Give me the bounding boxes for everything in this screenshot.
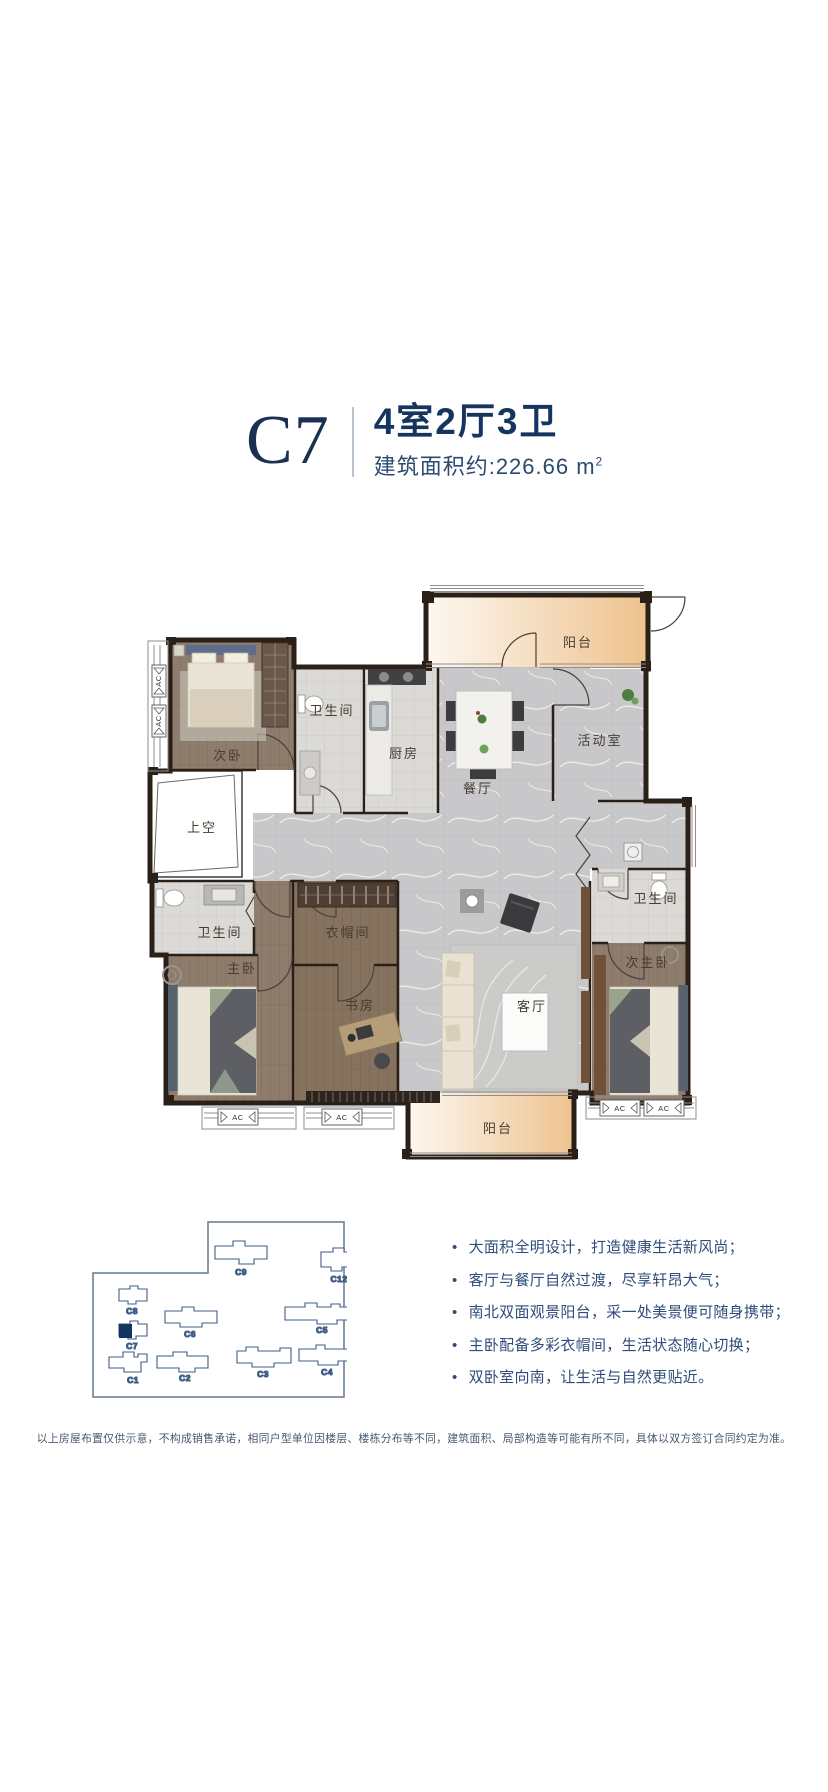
svg-text:AC: AC xyxy=(154,715,163,727)
ac-unit-left-1: AC xyxy=(152,665,166,697)
vanity-top-icon xyxy=(300,751,320,795)
svg-text:AC: AC xyxy=(336,1113,348,1122)
area-line: 建筑面积约:226.66 m2 xyxy=(374,449,604,481)
area-superscript: 2 xyxy=(596,455,604,469)
dining-table-icon xyxy=(446,691,524,779)
room-label-balcony-bottom: 阳台 xyxy=(483,1121,513,1136)
room-label-bath-left: 卫生间 xyxy=(197,925,242,940)
svg-text:C6: C6 xyxy=(184,1329,196,1339)
svg-text:C7: C7 xyxy=(126,1341,138,1351)
room-label-bath-top: 卫生间 xyxy=(309,703,354,718)
ac-unit-bottom-4: AC xyxy=(644,1100,684,1116)
svg-text:C12: C12 xyxy=(330,1274,347,1284)
svg-text:AC: AC xyxy=(614,1104,626,1113)
tv-cabinet-icon-2 xyxy=(581,991,590,1083)
svg-text:C9: C9 xyxy=(235,1267,247,1277)
feature-item: •客厅与餐厅自然过渡，尽享轩昂大气； xyxy=(452,1271,797,1292)
ac-unit-bottom-2: AC xyxy=(322,1109,362,1125)
disclaimer: 以上房屋布置仅供示意，不构成销售承诺，相同户型单位因楼层、楼栋分布等不同，建筑面… xyxy=(0,1430,828,1446)
feature-item: •大面积全明设计，打造健康生活新风尚； xyxy=(452,1238,797,1259)
ac-unit-bottom-1: AC xyxy=(218,1109,258,1125)
tv-cabinet-icon xyxy=(581,887,590,979)
feature-list: •大面积全明设计，打造健康生活新风尚； •客厅与餐厅自然过渡，尽享轩昂大气； •… xyxy=(452,1238,797,1401)
ac-unit-left-2: AC xyxy=(152,705,166,737)
svg-text:C2: C2 xyxy=(179,1373,191,1383)
room-label-cloakroom: 衣帽间 xyxy=(325,925,370,940)
page: C7 4室2厅3卫 建筑面积约:226.66 m2 xyxy=(0,0,828,1792)
site-plan-svg: C9 C12 C8 C6 C5 C7 xyxy=(75,1220,347,1404)
svg-text:C4: C4 xyxy=(321,1367,333,1377)
svg-text:C3: C3 xyxy=(257,1369,269,1379)
side-table-icon xyxy=(460,889,484,913)
layout-title: 4室2厅3卫 xyxy=(374,401,604,443)
vanity-left-icon xyxy=(204,885,244,905)
header: C7 4室2厅3卫 建筑面积约:226.66 m2 xyxy=(246,401,603,481)
balcony-top-floor xyxy=(426,595,648,667)
toilet-left-icon xyxy=(156,889,184,907)
bullet-icon: • xyxy=(452,1271,458,1292)
floor-plan-figure: AC AC AC AC AC xyxy=(108,555,712,1170)
sofa-icon xyxy=(442,953,474,1089)
floor-plan-svg: AC AC AC AC AC xyxy=(108,555,712,1165)
bullet-icon: • xyxy=(452,1238,458,1259)
room-label-bath-right: 卫生间 xyxy=(633,891,678,906)
svg-text:C5: C5 xyxy=(316,1325,328,1335)
svg-text:AC: AC xyxy=(154,675,163,687)
svg-text:C8: C8 xyxy=(126,1306,138,1316)
site-plan-figure: C9 C12 C8 C6 C5 C7 xyxy=(75,1220,347,1409)
room-label-activity-room: 活动室 xyxy=(577,733,622,748)
room-label-void: 上空 xyxy=(187,820,217,835)
area-text: 建筑面积约:226.66 m xyxy=(374,454,596,479)
feature-item: •主卧配备多彩衣帽间，生活状态随心切换； xyxy=(452,1336,797,1357)
bullet-icon: • xyxy=(452,1368,458,1389)
building-c7-highlight xyxy=(119,1324,132,1338)
feature-item: •双卧室向南，让生活与自然更贴近。 xyxy=(452,1368,797,1389)
unit-code: C7 xyxy=(246,401,330,481)
room-label-study: 书房 xyxy=(345,998,375,1013)
bullet-icon: • xyxy=(452,1336,458,1357)
header-right: 4室2厅3卫 建筑面积约:226.66 m2 xyxy=(374,401,604,481)
wardrobe-cloakroom-icon xyxy=(298,883,396,907)
bullet-icon: • xyxy=(452,1303,458,1324)
svg-text:AC: AC xyxy=(658,1104,670,1113)
room-label-bedroom-second: 次卧 xyxy=(213,748,243,763)
room-label-living: 客厅 xyxy=(517,999,547,1014)
svg-text:C1: C1 xyxy=(127,1375,139,1385)
header-divider xyxy=(352,407,354,477)
washer-icon xyxy=(624,843,642,861)
room-label-dining: 餐厅 xyxy=(463,781,493,796)
room-label-balcony-top: 阳台 xyxy=(563,635,593,650)
feature-item: •南北双面观景阳台，采一处美景便可随身携带； xyxy=(452,1303,797,1324)
svg-text:AC: AC xyxy=(232,1113,244,1122)
room-label-kitchen: 厨房 xyxy=(389,746,419,761)
study-chair-icon xyxy=(374,1053,390,1069)
room-label-second-master: 次主卧 xyxy=(625,955,670,970)
room-label-master: 主卧 xyxy=(227,961,257,976)
ac-unit-bottom-3: AC xyxy=(600,1100,640,1116)
vanity-right-icon xyxy=(598,873,624,891)
